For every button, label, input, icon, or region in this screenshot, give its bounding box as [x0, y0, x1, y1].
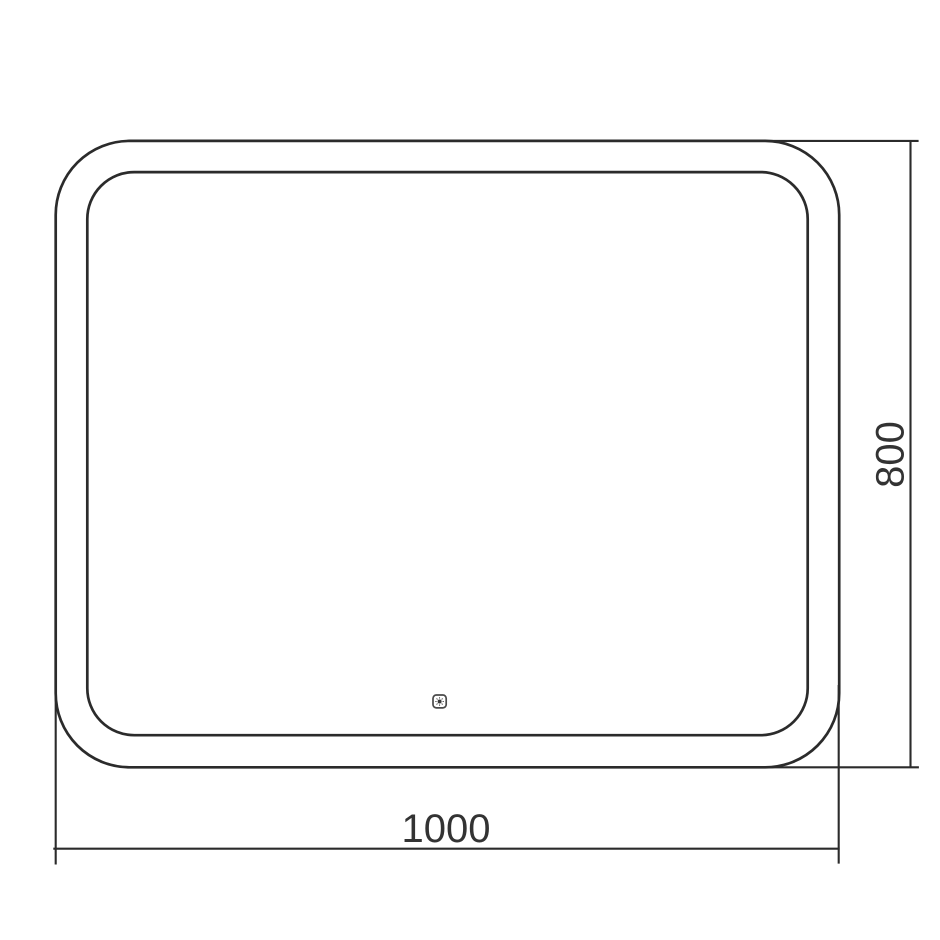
svg-text:1000: 1000 [402, 807, 491, 851]
svg-text:800: 800 [869, 421, 913, 488]
